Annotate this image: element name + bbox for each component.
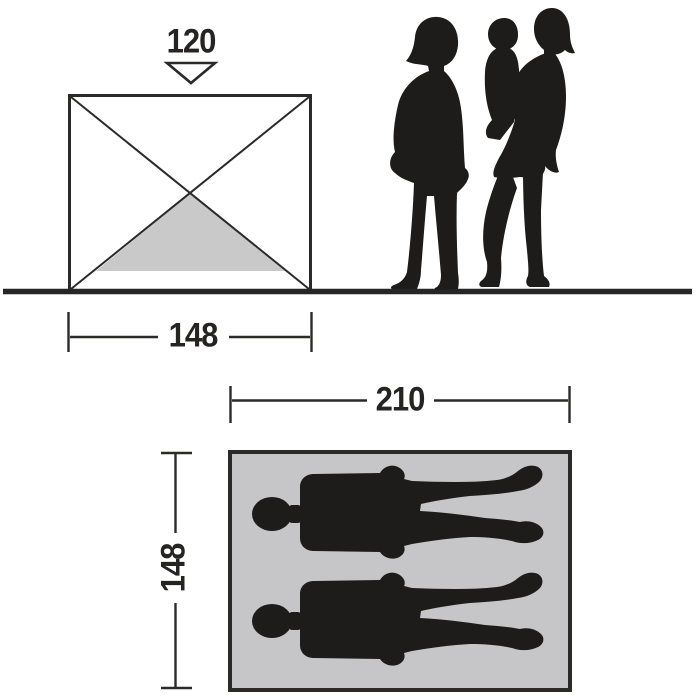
adult-holding-child-silhouette xyxy=(534,8,575,55)
lying-person-neck xyxy=(289,612,301,630)
family-silhouette-icon xyxy=(390,8,575,290)
standing-adult-silhouette xyxy=(390,17,469,290)
lying-person-head xyxy=(252,497,292,531)
diagram-artwork xyxy=(0,0,700,700)
front-height-label: 120 xyxy=(167,24,216,58)
lying-person-head xyxy=(252,604,292,638)
front-width-label: 148 xyxy=(169,318,218,352)
floor-plan xyxy=(161,386,570,690)
plan-depth-label: 148 xyxy=(156,544,190,593)
inner-tent-shade xyxy=(96,194,285,271)
adult-holding-child-silhouette xyxy=(523,168,550,287)
child-silhouette xyxy=(488,18,518,50)
lying-person-neck xyxy=(289,505,301,523)
adult-holding-child-silhouette xyxy=(479,158,517,287)
plan-length-label: 210 xyxy=(376,382,425,416)
height-arrow-icon xyxy=(167,63,215,83)
front-elevation xyxy=(69,63,312,352)
tent-dimension-diagram: 120 148 210 148 xyxy=(0,0,700,700)
